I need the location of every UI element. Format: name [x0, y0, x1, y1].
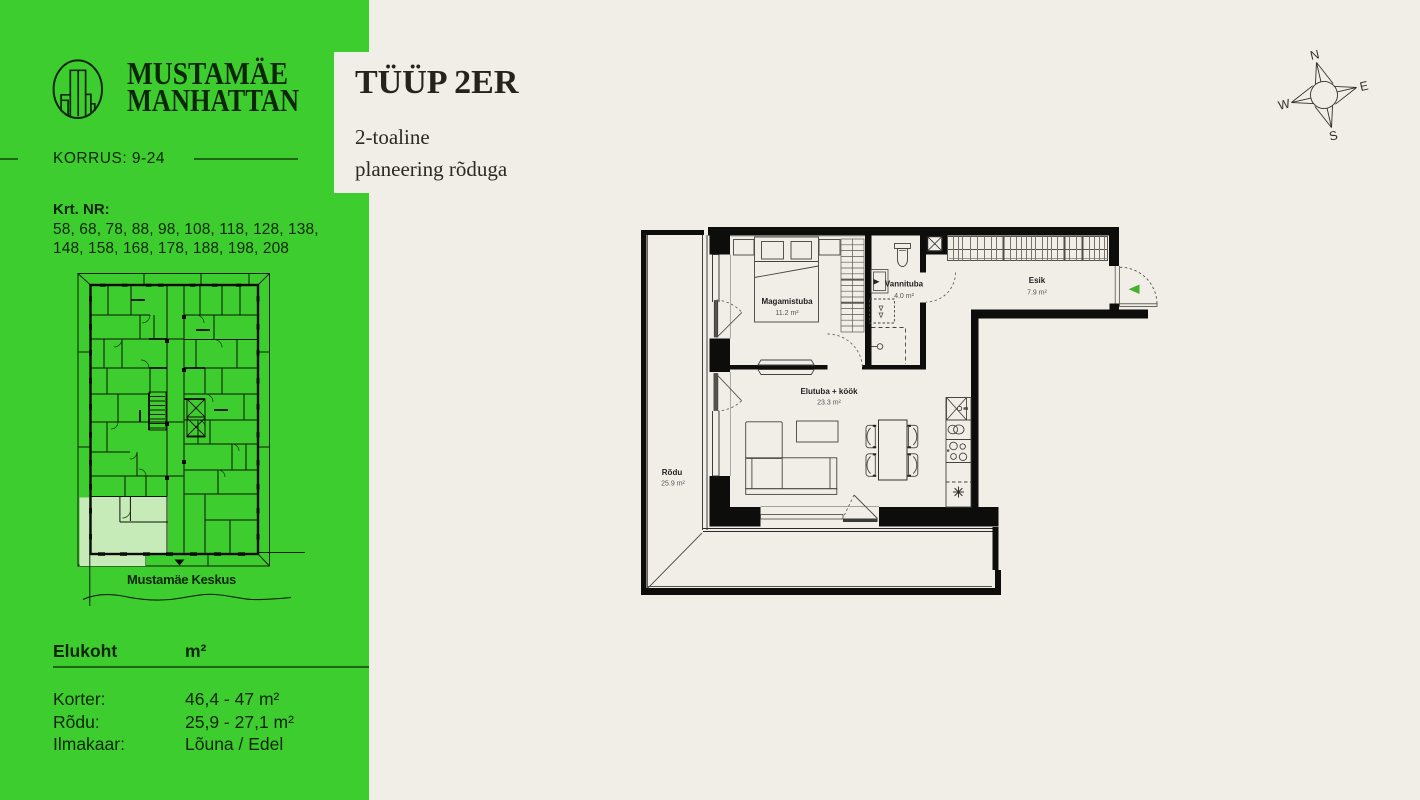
- svg-text:25.9 m²: 25.9 m²: [661, 481, 685, 488]
- svg-text:Magamistuba: Magamistuba: [761, 297, 813, 306]
- svg-text:E: E: [1358, 79, 1369, 95]
- svg-text:23.3 m²: 23.3 m²: [817, 400, 841, 407]
- svg-text:11.2 m²: 11.2 m²: [775, 310, 799, 317]
- svg-text:Vannituba: Vannituba: [885, 280, 924, 289]
- svg-text:Esik: Esik: [1029, 276, 1046, 285]
- svg-text:N: N: [1309, 47, 1321, 63]
- svg-text:S: S: [1328, 128, 1339, 144]
- svg-text:Elutuba + köök: Elutuba + köök: [800, 387, 858, 396]
- svg-text:4.0 m²: 4.0 m²: [894, 293, 915, 300]
- svg-text:7.9 m²: 7.9 m²: [1027, 290, 1048, 297]
- svg-text:MANHATTAN: MANHATTAN: [127, 82, 299, 118]
- svg-text:Rõdu: Rõdu: [662, 468, 683, 477]
- svg-text:W: W: [1277, 97, 1292, 113]
